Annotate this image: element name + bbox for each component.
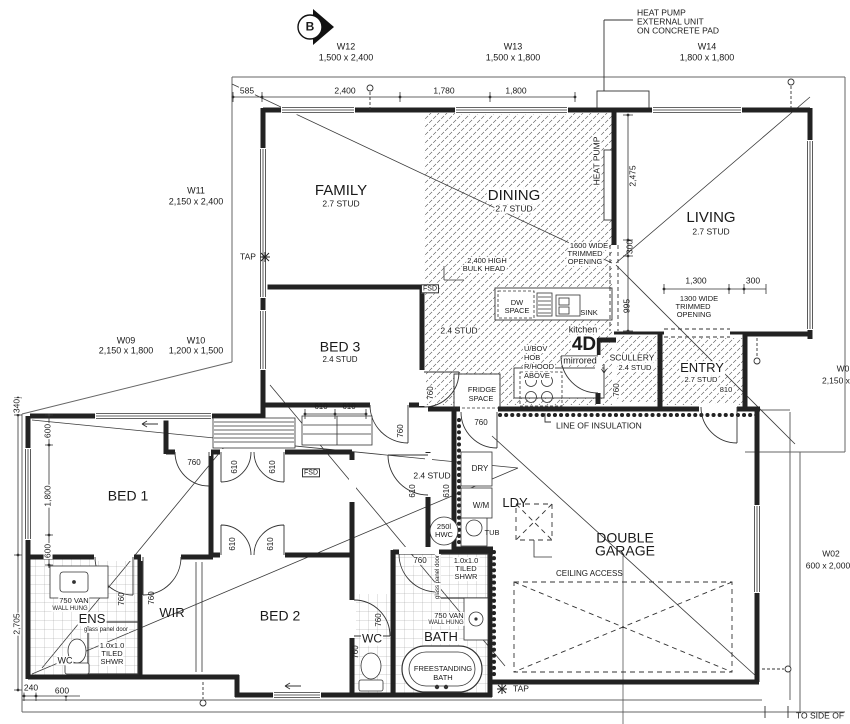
room-wir: WIR (159, 606, 184, 620)
hwc-line2: HWC (435, 531, 453, 539)
window-label-w02: W02 (822, 550, 839, 559)
room-wc-ens: WC (57, 656, 74, 665)
room-family-stud: 2.7 STUD (322, 200, 359, 209)
bath-shower-line3: SHWR (454, 573, 479, 581)
bath-glass-door-note: glass panel door (435, 554, 441, 600)
dim-810: 810 (719, 386, 734, 394)
fsd-tag-kitchen: FSD (421, 284, 439, 293)
freestanding-bath-line1: FREESTANDING (413, 665, 473, 673)
window-label-w12: W12 (337, 42, 356, 51)
window-size-w13: 1,500 x 1,800 (486, 53, 541, 62)
room-scullery-stud: 2.4 STUD (618, 364, 653, 372)
dim-760-bed1-door: 760 (187, 459, 200, 467)
window-size-w02: 600 x 2,000 (806, 562, 850, 571)
kitchen-stud-label: 2.4 STUD (439, 327, 478, 336)
dim-2400: 2,400 (333, 87, 356, 96)
dim-995: 995 (623, 299, 632, 313)
ens-vanity-line1: 750 VAN (58, 597, 89, 605)
room-bath: BATH (423, 630, 459, 644)
dim-585: 585 (239, 87, 255, 96)
dim-300-opening: 300 (745, 277, 761, 286)
dim-1300: 1,300 (684, 277, 707, 286)
dim-760-ens-door: 760 (118, 592, 126, 605)
kitchen-mirrored: mirrored (562, 356, 598, 365)
dim-1780: 1,780 (432, 87, 455, 96)
dim-610-cupboard-a: 610 (314, 403, 327, 411)
kitchen-code: 4D (571, 335, 597, 355)
room-wc: WC (361, 633, 383, 646)
dim-610-hall-door-a: 610 (231, 460, 239, 473)
dim-760-bath-door: 760 (412, 557, 427, 565)
room-ens: ENS (78, 612, 107, 626)
room-bed1: BED 1 (108, 489, 148, 504)
window-size-w11: 2,150 x 2,400 (169, 197, 224, 206)
hob-note-line2: HOB (523, 354, 541, 362)
dim-300-right: 300 (626, 240, 635, 254)
window-label-w11: W11 (187, 186, 205, 195)
freestanding-bath-line2: BATH (432, 674, 453, 682)
room-entry-stud: 2.7 STUD (684, 376, 719, 384)
fridge-line1: FRIDGE (468, 386, 496, 394)
bath-vanity-line2: WALL HUNG (427, 620, 464, 626)
room-living-stud: 2.7 STUD (692, 228, 729, 237)
window-size-w09: 2,150 x 1,800 (99, 346, 154, 355)
dim-760-wc-door: 760 (375, 613, 383, 626)
room-garage-line2: GARAGE (595, 544, 655, 559)
fridge-line2: SPACE (469, 395, 494, 403)
dw-space-line2: SPACE (505, 307, 530, 315)
dim-610-hwc-a: 610 (409, 484, 417, 497)
room-scullery: SCULLERY (609, 354, 656, 363)
bath-vanity-line1: 750 VAN (433, 612, 464, 620)
window-label-w13: W13 (504, 42, 523, 51)
hall-stud-label: 2.4 STUD (413, 472, 450, 481)
dim-760-wc-width: 760 (352, 645, 360, 658)
room-bed3-stud: 2.4 STUD (322, 356, 357, 364)
window-size-w14: 1,800 x 1,800 (680, 53, 735, 62)
room-dining: DINING (487, 188, 542, 204)
dim-760-wir-door: 760 (148, 591, 156, 604)
dim-2705: 2,705 (13, 612, 22, 635)
dim-610-bed2-door-a: 610 (229, 537, 237, 550)
room-entry: ENTRY (679, 361, 725, 375)
sink-label: SINK (580, 309, 598, 317)
dim-610-hall-door-b: 610 (269, 460, 277, 473)
dim-610-hwc-b: 610 (443, 484, 451, 497)
dim-240: 240 (23, 684, 39, 693)
fsd-tag-hall: FSD (302, 468, 320, 477)
ceiling-access-note: CEILING ACCESS (556, 570, 623, 578)
room-bed3: BED 3 (320, 340, 360, 355)
dim-610-cupboard-b: 610 (342, 403, 355, 411)
dim-760-ldy-door: 760 (474, 419, 487, 427)
room-bed2: BED 2 (260, 609, 300, 624)
section-marker-label: B (306, 21, 315, 34)
heat-pump-note-line3: ON CONCRETE PAD (637, 27, 719, 36)
tub-label: TUB (485, 529, 500, 537)
dim-1800-top: 1,800 (504, 87, 527, 96)
window-size-w12: 1,500 x 2,400 (319, 53, 374, 62)
trimmed-1300-line3: OPENING (677, 311, 712, 319)
dim-2475: 2,475 (629, 165, 638, 186)
dim-600-left-b: 600 (44, 543, 53, 559)
to-side-of-note: TO SIDE OF (796, 712, 844, 721)
ens-vanity-line2: WALL HUNG (51, 606, 88, 612)
ceiling-access-leader (534, 540, 552, 557)
window-size-w10: 1,200 x 1,500 (169, 346, 224, 355)
washing-machine-label: W/M (473, 502, 489, 510)
hob-note-line1: U/BOV (523, 345, 548, 353)
dim-1800-left: 1,800 (44, 484, 53, 507)
dim-760-scullery-door: 760 (613, 382, 621, 397)
room-ldy: LDY (502, 496, 527, 510)
dim-760-bed3-door: 760 (397, 424, 405, 437)
tap-label-top: TAP (240, 253, 256, 262)
heat-pump-wall-label: HEAT PUMP (593, 136, 602, 187)
window-label-w14: W14 (698, 42, 717, 51)
dim-760-kitchen-door: 760 (427, 385, 435, 400)
section-marker (298, 9, 334, 45)
ens-shower-line3: SHWR (100, 658, 125, 666)
dim-600-left-a: 600 (44, 423, 53, 439)
window-size-w01: 2,150 x (822, 377, 850, 386)
window-label-w01: W0 (837, 365, 850, 374)
bulkhead-line2: BULK HEAD (462, 265, 507, 273)
room-family: FAMILY (315, 183, 367, 199)
dim-610-bed2-door-b: 610 (267, 537, 275, 550)
dim-340: 340 (13, 398, 22, 414)
insulation-note: LINE OF INSULATION (556, 422, 642, 431)
hob-note-line4: ABOVE (523, 372, 551, 380)
dryer-label: DRY (472, 465, 489, 473)
dim-600-bottom: 600 (54, 687, 70, 696)
tap-label-bottom: TAP (513, 685, 529, 694)
room-living: LIVING (686, 210, 735, 226)
trimmed-1600-line3: OPENING (567, 258, 604, 266)
room-dining-stud: 2.7 STUD (494, 205, 533, 214)
hob-note-line3: R/HOOD (523, 363, 555, 371)
ens-glass-door-note: glass panel door (83, 627, 129, 633)
floor-plan: B HEAT PUMP EXTERNAL UNIT ON CONCRETE PA… (0, 0, 850, 724)
